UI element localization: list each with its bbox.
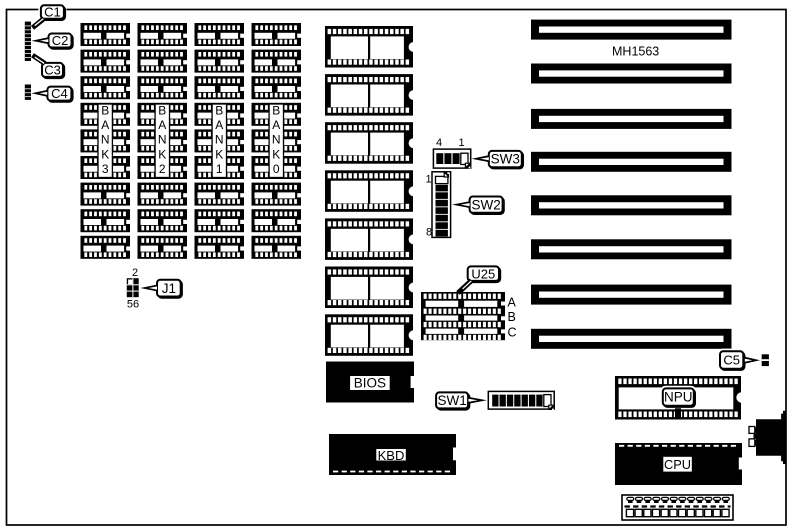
svg-text:MH1563: MH1563: [612, 44, 659, 58]
svg-text:C3: C3: [44, 63, 61, 78]
svg-text:1: 1: [216, 162, 223, 176]
svg-text:B: B: [215, 103, 223, 117]
svg-text:B: B: [101, 103, 109, 117]
svg-text:K: K: [215, 147, 223, 161]
svg-text:2: 2: [132, 267, 138, 279]
svg-text:K: K: [272, 147, 280, 161]
svg-text:N: N: [215, 133, 224, 147]
svg-text:A: A: [508, 295, 517, 309]
svg-text:3: 3: [102, 162, 109, 176]
svg-text:C5: C5: [723, 353, 740, 368]
svg-text:J1: J1: [162, 281, 176, 296]
svg-text:KBD: KBD: [378, 448, 405, 463]
svg-text:A: A: [272, 118, 280, 132]
svg-text:A: A: [215, 118, 223, 132]
svg-text:K: K: [158, 147, 166, 161]
svg-text:C: C: [508, 326, 517, 340]
svg-text:NPU: NPU: [664, 390, 693, 405]
svg-text:1: 1: [425, 174, 431, 186]
svg-text:56: 56: [127, 299, 139, 311]
svg-text:C4: C4: [51, 86, 68, 101]
svg-text:SW3: SW3: [491, 152, 520, 167]
svg-text:K: K: [101, 147, 109, 161]
svg-text:0: 0: [273, 162, 280, 176]
svg-text:1: 1: [458, 137, 464, 149]
svg-text:B: B: [158, 103, 166, 117]
svg-text:N: N: [101, 133, 110, 147]
svg-text:8: 8: [426, 227, 432, 239]
svg-text:BIOS: BIOS: [354, 376, 386, 391]
svg-text:U25: U25: [471, 266, 495, 281]
svg-text:SW1: SW1: [437, 393, 466, 408]
svg-text:N: N: [158, 133, 167, 147]
svg-text:N: N: [272, 133, 281, 147]
svg-text:2: 2: [159, 162, 166, 176]
svg-text:4: 4: [436, 137, 442, 149]
svg-text:SW2: SW2: [471, 197, 500, 212]
svg-text:C2: C2: [52, 33, 69, 48]
svg-text:B: B: [272, 103, 280, 117]
svg-text:B: B: [508, 310, 516, 324]
svg-text:CPU: CPU: [664, 457, 691, 472]
svg-text:C1: C1: [44, 5, 61, 20]
svg-text:A: A: [158, 118, 166, 132]
svg-text:A: A: [101, 118, 109, 132]
